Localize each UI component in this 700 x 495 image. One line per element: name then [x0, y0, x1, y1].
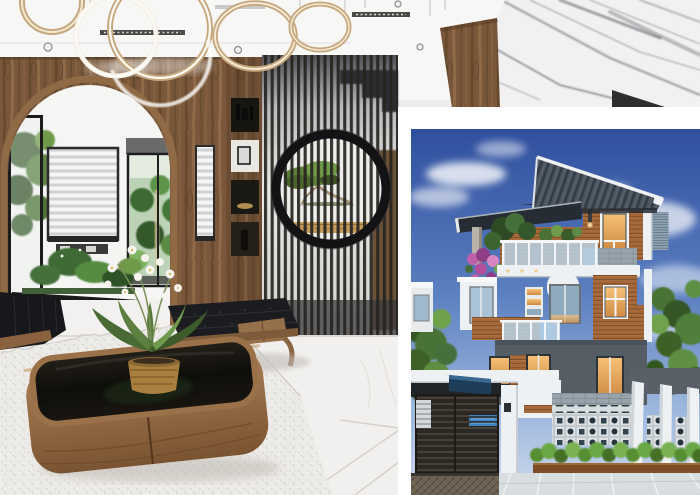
side-louver: [635, 305, 644, 342]
pool: [469, 415, 497, 426]
side-blinds-panel: [196, 146, 214, 241]
paver-drive: [411, 475, 499, 495]
gate-pillar: [501, 385, 518, 477]
left-wall-fragment: [411, 282, 433, 332]
lower-balcony: [500, 320, 562, 340]
basket: [128, 357, 180, 394]
balcony-door: [550, 285, 580, 323]
balcony-railing: [500, 240, 599, 267]
stacked-windows: [525, 287, 543, 317]
room-window-blinds: [48, 148, 118, 254]
right-wing-window: [603, 285, 628, 319]
collage-canvas: [0, 0, 700, 495]
house-photo: [411, 129, 700, 495]
driveway: [411, 473, 700, 495]
third-floor-window: [600, 211, 629, 253]
house-photo-frame: [398, 107, 700, 495]
louver-panel: [653, 212, 669, 250]
gate: [416, 395, 498, 473]
